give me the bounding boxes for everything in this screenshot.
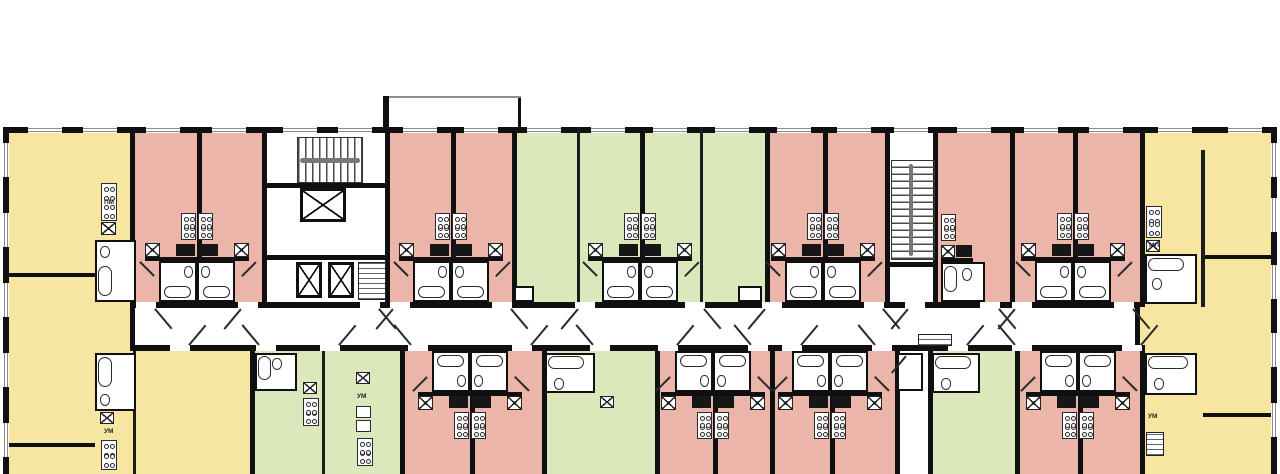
sink-icon <box>145 243 160 257</box>
door-opening <box>1122 345 1142 351</box>
door-opening <box>512 345 532 351</box>
toilet-icon <box>627 266 636 278</box>
window-sill <box>957 131 991 132</box>
kitchen-appliance-label: УМ <box>104 429 113 436</box>
window-sill <box>212 131 246 132</box>
burner-icon <box>633 224 638 229</box>
kitchen-counter <box>692 396 711 408</box>
burner-icon <box>366 442 371 447</box>
door-opening <box>1114 302 1134 308</box>
bathroom-divider <box>711 351 715 392</box>
kitchen-counter <box>199 244 218 256</box>
burner-icon <box>816 217 821 222</box>
burner-icon <box>463 423 468 428</box>
kitchen-appliance-label: УМ <box>357 394 366 401</box>
burner-icon <box>817 423 822 428</box>
bathtub-icon <box>797 355 824 367</box>
burner-icon <box>650 217 655 222</box>
wall-interior <box>9 443 95 447</box>
window-sill <box>777 131 811 132</box>
wall-partition-top <box>885 127 890 307</box>
door-opening <box>238 302 258 308</box>
burner-icon <box>827 233 832 238</box>
bathtub-icon <box>1084 355 1111 367</box>
window-sill <box>403 128 437 129</box>
burner-icon <box>463 432 468 437</box>
burner-icon <box>306 419 311 424</box>
burner-icon <box>438 217 443 222</box>
burner-icon <box>823 423 828 428</box>
window-sill <box>146 128 180 129</box>
entrance-canopy-wall <box>518 96 521 133</box>
burner-icon <box>104 454 109 459</box>
burner-icon <box>1082 416 1087 421</box>
burner-icon <box>474 416 479 421</box>
door-opening <box>320 345 340 351</box>
kitchen-counter <box>825 244 844 256</box>
burner-icon <box>461 217 466 222</box>
bathroom-divider <box>821 261 825 302</box>
toilet-icon <box>941 378 951 390</box>
burner-icon <box>1077 233 1082 238</box>
wall-partition-top <box>1010 127 1015 307</box>
bathtub-icon <box>457 286 484 298</box>
burner-icon <box>950 234 955 239</box>
window-sill <box>1089 131 1123 132</box>
burner-icon <box>1071 423 1076 428</box>
window-sill <box>283 131 317 132</box>
burner-icon <box>201 217 206 222</box>
burner-icon <box>827 224 832 229</box>
window-sill <box>7 353 8 387</box>
kitchen-counter <box>956 245 972 257</box>
kitchen-counter <box>1080 396 1099 408</box>
window-sill <box>4 143 5 177</box>
window-sill <box>1089 128 1123 129</box>
burner-icon <box>474 432 479 437</box>
sink-icon <box>1110 243 1125 257</box>
sink-icon <box>488 243 503 257</box>
burner-icon <box>438 233 443 238</box>
burner-icon <box>944 218 949 223</box>
kitchen-counter <box>715 396 734 408</box>
wall-interior <box>885 262 933 267</box>
window-sill <box>591 128 625 129</box>
bathtub-icon <box>98 357 112 387</box>
window-sill <box>403 131 437 132</box>
sink-icon <box>1026 396 1041 410</box>
window-sill <box>1272 333 1273 367</box>
window-sill <box>715 131 749 132</box>
burner-icon <box>840 423 845 428</box>
burner-icon <box>104 444 109 449</box>
burner-icon <box>723 423 728 428</box>
burner-icon <box>457 423 462 428</box>
burner-icon <box>627 217 632 222</box>
wall-interior <box>1203 413 1277 417</box>
toilet-icon <box>1077 266 1086 278</box>
window-sill <box>894 131 928 132</box>
bathtub-icon <box>680 355 707 367</box>
wall-corridor-bottom <box>130 345 1140 351</box>
burner-icon <box>644 233 649 238</box>
burner-icon <box>306 410 311 415</box>
window-sill <box>7 143 8 177</box>
burner-icon <box>810 224 815 229</box>
window-sill <box>653 128 687 129</box>
sink-icon <box>1021 243 1036 257</box>
burner-icon <box>190 217 195 222</box>
burner-icon <box>817 432 822 437</box>
burner-icon <box>834 416 839 421</box>
window-sill <box>653 131 687 132</box>
window-sill <box>4 423 5 457</box>
burner-icon <box>110 187 115 192</box>
kitchen-appliance-label: МП <box>1149 243 1159 250</box>
burner-icon <box>717 416 722 421</box>
burner-icon <box>1060 217 1065 222</box>
toilet-icon <box>700 375 709 387</box>
burner-icon <box>1077 217 1082 222</box>
burner-icon <box>201 224 206 229</box>
door-opening <box>590 345 610 351</box>
kitchen-counter <box>802 244 821 256</box>
door-opening <box>492 302 512 308</box>
burner-icon <box>312 402 317 407</box>
window-sill <box>4 353 5 387</box>
window-sill <box>715 128 749 129</box>
burner-icon <box>1088 432 1093 437</box>
burner-icon <box>723 416 728 421</box>
burner-icon <box>110 444 115 449</box>
window-sill <box>338 131 372 132</box>
burner-icon <box>366 450 371 455</box>
sink-icon <box>600 396 614 408</box>
window-sill <box>83 128 117 129</box>
window-sill <box>4 283 5 317</box>
elevator-icon <box>328 262 354 298</box>
burner-icon <box>833 233 838 238</box>
bathtub-icon <box>1040 286 1067 298</box>
door-opening <box>136 302 156 308</box>
window-sill <box>1024 128 1058 129</box>
window-sill <box>464 128 498 129</box>
sink-icon <box>1115 396 1130 410</box>
wall-interior <box>1201 150 1205 307</box>
sink-icon <box>860 243 875 257</box>
window-sill <box>1275 143 1276 177</box>
burner-icon <box>717 423 722 428</box>
elevator-icon <box>300 188 346 222</box>
burner-icon <box>633 217 638 222</box>
burner-icon <box>104 214 109 219</box>
window-sill <box>28 128 62 129</box>
toilet-icon <box>474 375 483 387</box>
burner-icon <box>360 442 365 447</box>
bathtub-icon <box>646 286 673 298</box>
burner-icon <box>474 423 479 428</box>
toilet-icon <box>962 268 972 281</box>
sink-icon <box>399 243 414 257</box>
burner-icon <box>457 432 462 437</box>
toilet-icon <box>817 375 826 387</box>
toilet-icon <box>717 375 726 387</box>
bathtub-icon <box>418 286 445 298</box>
sink-icon <box>588 243 603 257</box>
burner-icon <box>457 416 462 421</box>
bathroom-divider <box>828 351 832 392</box>
bathtub-icon <box>203 286 230 298</box>
burner-icon <box>190 224 195 229</box>
bathroom-divider <box>1071 261 1075 302</box>
kitchen-cabinet <box>356 420 371 432</box>
burner-icon <box>1066 217 1071 222</box>
burner-icon <box>207 217 212 222</box>
burner-icon <box>1083 233 1088 238</box>
burner-icon <box>1149 222 1154 227</box>
window-sill <box>7 423 8 457</box>
bathroom-divider <box>449 261 453 302</box>
window-sill <box>1272 143 1273 177</box>
kitchen-appliance-label: УМ <box>1148 414 1157 421</box>
burner-icon <box>1065 432 1070 437</box>
kitchen-counter <box>832 396 851 408</box>
burner-icon <box>480 416 485 421</box>
burner-icon <box>700 432 705 437</box>
wall-corridor-cap <box>130 302 135 351</box>
appliance-icon <box>1146 432 1164 456</box>
sink-icon <box>867 396 882 410</box>
burner-icon <box>627 224 632 229</box>
burner-icon <box>700 416 705 421</box>
wall-partition-top <box>765 127 770 307</box>
burner-icon <box>833 217 838 222</box>
burner-icon <box>201 233 206 238</box>
bathtub-icon <box>719 355 746 367</box>
bathtub-icon <box>548 356 584 369</box>
burner-icon <box>207 224 212 229</box>
burner-icon <box>650 224 655 229</box>
floor-plan-canvas: ПММПУМУМУМ <box>0 0 1280 474</box>
burner-icon <box>110 454 115 459</box>
kitchen-counter <box>642 244 661 256</box>
window-sill <box>527 128 561 129</box>
door-opening <box>864 302 884 308</box>
burner-icon <box>950 225 955 230</box>
burner-icon <box>816 224 821 229</box>
door-opening <box>980 302 1000 308</box>
toilet-icon <box>100 246 110 258</box>
burner-icon <box>706 416 711 421</box>
door-opening <box>575 302 595 308</box>
burner-icon <box>306 402 311 407</box>
window-sill <box>1228 131 1262 132</box>
burner-icon <box>360 450 365 455</box>
wall-partition-bottom <box>400 345 405 474</box>
window-sill <box>1228 128 1262 129</box>
burner-icon <box>1065 423 1070 428</box>
kitchen-counter <box>472 396 491 408</box>
burner-icon <box>461 233 466 238</box>
kitchen-counter <box>619 244 638 256</box>
sink-icon <box>356 372 370 384</box>
sink-icon <box>234 243 249 257</box>
burner-icon <box>110 214 115 219</box>
toilet-icon <box>201 266 210 278</box>
window-sill <box>1275 333 1276 367</box>
window-sill <box>837 131 871 132</box>
burner-icon <box>1066 233 1071 238</box>
shaft-box <box>514 286 534 302</box>
burner-icon <box>1083 224 1088 229</box>
kitchen-counter <box>453 244 472 256</box>
burner-icon <box>1060 224 1065 229</box>
window-sill <box>1272 403 1273 437</box>
burner-icon <box>827 217 832 222</box>
toilet-icon <box>272 358 282 370</box>
burner-icon <box>455 224 460 229</box>
burner-icon <box>1149 210 1154 215</box>
kitchen-counter <box>1057 396 1076 408</box>
toilet-icon <box>184 266 193 278</box>
bathtub-icon <box>437 355 464 367</box>
wall-partition-bottom <box>1015 345 1020 474</box>
burner-icon <box>944 225 949 230</box>
kitchen-cabinet <box>356 406 371 418</box>
sink-icon <box>661 396 676 410</box>
toilet-icon <box>554 378 564 390</box>
central-corridor <box>130 308 1140 345</box>
wall-partition-top <box>512 127 517 307</box>
door-opening <box>408 345 428 351</box>
bathroom-divider <box>638 261 642 302</box>
window-sill <box>83 131 117 132</box>
door-opening <box>256 345 276 351</box>
burner-icon <box>1155 231 1160 236</box>
burner-icon <box>700 423 705 428</box>
door-opening <box>762 302 782 308</box>
burner-icon <box>723 432 728 437</box>
burner-icon <box>104 187 109 192</box>
burner-icon <box>480 432 485 437</box>
burner-icon <box>312 410 317 415</box>
sink-icon <box>101 222 116 235</box>
burner-icon <box>190 233 195 238</box>
window-sill <box>591 131 625 132</box>
window-sill <box>527 131 561 132</box>
staircase-icon <box>891 160 935 260</box>
burner-icon <box>1155 210 1160 215</box>
bathtub-icon <box>164 286 191 298</box>
door-opening <box>905 302 925 308</box>
burner-icon <box>110 463 115 468</box>
bathtub-icon <box>1079 286 1106 298</box>
window-sill <box>1158 131 1192 132</box>
window-sill <box>1272 198 1273 232</box>
burner-icon <box>360 459 365 464</box>
kitchen-counter <box>1075 244 1094 256</box>
burner-icon <box>1155 222 1160 227</box>
burner-icon <box>312 419 317 424</box>
burner-icon <box>1077 224 1082 229</box>
burner-icon <box>717 432 722 437</box>
toilet-icon <box>438 266 447 278</box>
burner-icon <box>184 224 189 229</box>
window-sill <box>7 213 8 247</box>
burner-icon <box>950 218 955 223</box>
burner-icon <box>840 432 845 437</box>
bathtub-icon <box>829 286 856 298</box>
burner-icon <box>1071 432 1076 437</box>
toilet-icon <box>810 266 819 278</box>
kitchen-counter <box>430 244 449 256</box>
door-opening <box>748 345 768 351</box>
window-sill <box>957 128 991 129</box>
burner-icon <box>184 233 189 238</box>
bathtub-icon <box>1148 258 1184 271</box>
wall-partition-top-thin <box>577 127 580 302</box>
burner-icon <box>438 224 443 229</box>
bathroom-divider <box>195 261 199 302</box>
stair-rail <box>300 158 360 163</box>
burner-icon <box>1149 231 1154 236</box>
window-sill <box>837 128 871 129</box>
kitchen-appliance-label: ПМ <box>104 200 114 207</box>
toilet-icon <box>834 375 843 387</box>
sink-icon <box>507 396 522 410</box>
toilet-icon <box>100 394 110 406</box>
kitchen-counter <box>1052 244 1071 256</box>
window-sill <box>464 131 498 132</box>
burner-icon <box>944 234 949 239</box>
shaft-box <box>738 286 762 302</box>
window-sill <box>1275 403 1276 437</box>
door-opening <box>872 345 892 351</box>
burner-icon <box>1082 423 1087 428</box>
burner-icon <box>444 224 449 229</box>
storage-shelves-icon <box>918 334 952 346</box>
burner-icon <box>1088 423 1093 428</box>
wall-partition-top-thin <box>700 127 703 302</box>
burner-icon <box>444 217 449 222</box>
storage-shelves-icon <box>358 262 386 300</box>
burner-icon <box>1066 224 1071 229</box>
room-unit-west-yellow-south <box>130 351 250 474</box>
burner-icon <box>706 432 711 437</box>
wall-partition-bottom <box>655 345 660 474</box>
toilet-icon <box>1154 378 1164 390</box>
burner-icon <box>834 423 839 428</box>
burner-icon <box>455 217 460 222</box>
burner-icon <box>816 233 821 238</box>
burner-icon <box>463 416 468 421</box>
bathtub-icon <box>836 355 863 367</box>
burner-icon <box>480 423 485 428</box>
bathtub-icon <box>476 355 503 367</box>
entrance-canopy-edge <box>389 96 521 98</box>
wall-partition-bottom-thin <box>322 351 325 474</box>
burner-icon <box>104 463 109 468</box>
window-sill <box>4 213 5 247</box>
burner-icon <box>455 233 460 238</box>
sink-icon <box>418 396 433 410</box>
window-sill <box>1024 131 1058 132</box>
sink-icon <box>677 243 692 257</box>
bathroom-divider <box>1076 351 1080 392</box>
door-opening <box>1012 302 1032 308</box>
burner-icon <box>823 432 828 437</box>
burner-icon <box>1060 233 1065 238</box>
